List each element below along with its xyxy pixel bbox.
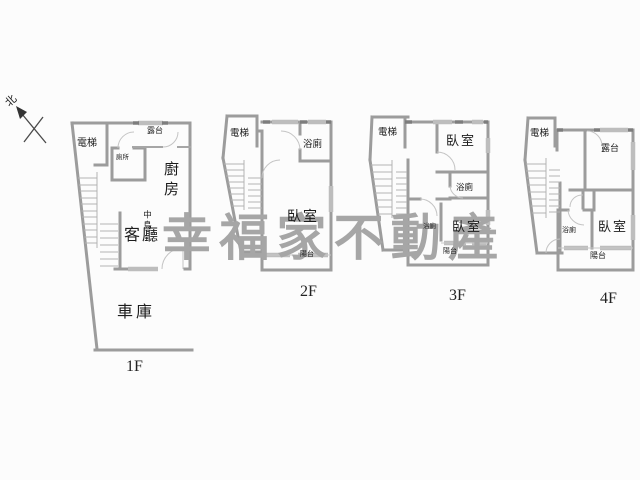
compass-icon — [16, 106, 46, 143]
watermark-char: 幸 — [162, 213, 212, 263]
room-label-balcony-2f: 陽台 — [300, 251, 314, 258]
room-label-elevator-4f: 電梯 — [530, 129, 549, 139]
floor-label-3f: 3F — [449, 288, 466, 304]
room-label-bath-2f: 浴廁 — [303, 140, 322, 150]
room-label-bedroom-4f: 臥室 — [598, 220, 628, 233]
watermark-char: 福 — [219, 213, 269, 263]
room-label-bedroom-lower-3f: 臥室 — [452, 220, 482, 233]
room-label-bedroom-upper-3f: 臥室 — [446, 134, 476, 147]
floor-label-4f: 4F — [600, 291, 617, 307]
floor-label-2f: 2F — [300, 284, 317, 300]
room-label-elevator-1f: 電梯 — [77, 139, 97, 149]
room-label-elevator-2f: 電梯 — [230, 129, 249, 139]
room-label-living-1f: 客廳 — [124, 228, 160, 244]
room-label-bath-lower-3f: 浴廁 — [423, 224, 436, 231]
room-label-balcony-3f: 陽台 — [443, 248, 457, 255]
room-label-terrace-4f: 露台 — [601, 144, 619, 153]
watermark-char: 動 — [391, 213, 441, 263]
room-label-balcony-4f: 陽台 — [590, 252, 606, 260]
watermark-char: 不 — [334, 213, 384, 263]
room-label-bedroom-2f: 臥室 — [287, 209, 319, 223]
room-label-terrace-1f: 露台 — [147, 127, 163, 135]
floor-4f-walls — [525, 118, 633, 270]
room-label-elevator-3f: 電梯 — [378, 128, 397, 138]
room-label-bath-4f: 浴廁 — [562, 227, 576, 234]
room-label-kitchen-1f: 廚房 — [163, 161, 178, 201]
floorplan-canvas: 幸 福 家 不 動 產 北 電梯 廁所 露台 廚房 中島 客廳 車庫 1F 電梯… — [0, 0, 640, 480]
room-label-bath-upper-3f: 浴廁 — [456, 183, 473, 192]
room-label-garage-1f: 車庫 — [117, 305, 155, 321]
room-label-toilet-1f: 廁所 — [116, 155, 129, 162]
floor-label-1f: 1F — [126, 359, 143, 375]
agency-watermark: 幸 福 家 不 動 產 — [162, 212, 498, 264]
